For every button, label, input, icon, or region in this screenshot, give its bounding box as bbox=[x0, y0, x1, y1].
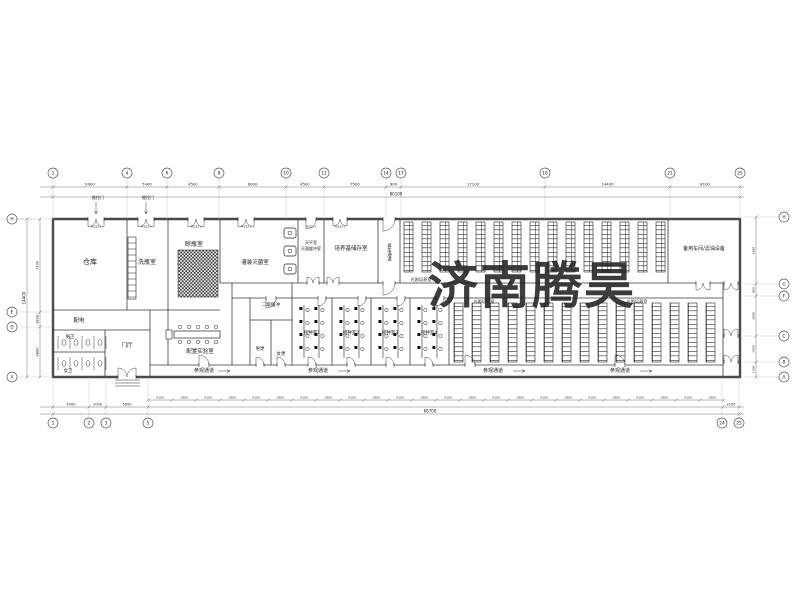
room-label-buffer2: 二级缓冲 bbox=[262, 301, 280, 308]
dim-number: 1800 bbox=[372, 396, 380, 400]
inoc-chair bbox=[439, 321, 442, 324]
inoc-seat bbox=[299, 320, 302, 323]
dim-number: 1800 bbox=[324, 396, 332, 400]
floor-plan-canvas: 9900540045006000450075009001710014400810… bbox=[0, 0, 800, 600]
room-label-medium-storage: 培养基储存室 bbox=[334, 244, 368, 252]
dim-number: 5000 bbox=[123, 403, 132, 407]
room-label-power: 配电 bbox=[73, 316, 85, 324]
watermark: 济南腾昊 bbox=[428, 257, 636, 315]
sliding-door-arrow-2 bbox=[145, 202, 148, 214]
stool bbox=[178, 325, 182, 329]
dim-number: 2100 bbox=[684, 396, 692, 400]
grid-bubble-top-9-label: 21 bbox=[667, 171, 673, 177]
grid-bubble-left-3-label: A bbox=[11, 375, 14, 381]
inoc-seat bbox=[354, 320, 357, 323]
inoc-chair bbox=[385, 347, 388, 350]
room-label-warehouse: 仓库 bbox=[83, 257, 97, 266]
dim-number: 2100 bbox=[156, 396, 164, 400]
floor-plan-drawing: 9900540045006000450075009001710014400810… bbox=[0, 0, 800, 600]
grid-bubble-bottom-right-1-label: 25 bbox=[736, 421, 742, 427]
room-label-sterile-buffer: 灭菌缓冲室 bbox=[301, 245, 321, 251]
inoc-seat bbox=[339, 307, 342, 310]
inoc-chair bbox=[400, 334, 403, 337]
inoc-chair bbox=[346, 321, 349, 324]
room-label-bottle-washing: 洗瓶室 bbox=[138, 258, 156, 266]
room-label-prep-lab: 配置实验室 bbox=[186, 347, 214, 355]
room-label-inoc2: 接种室2 bbox=[343, 329, 359, 336]
filling-machine bbox=[284, 264, 296, 274]
door-opening bbox=[318, 296, 326, 300]
door-opening bbox=[465, 363, 475, 367]
door-tag-1: M1521 bbox=[141, 225, 151, 229]
inoc-chair bbox=[346, 347, 349, 350]
stool bbox=[214, 325, 218, 329]
door-opening bbox=[266, 296, 276, 300]
toilet-fixture bbox=[86, 340, 90, 346]
room-label-inoc4: 接种室4 bbox=[421, 329, 437, 336]
dim-number: 1800 bbox=[660, 396, 668, 400]
dim-number: 4800 bbox=[36, 348, 40, 357]
grid-bubble-top-1-label: 4 bbox=[126, 171, 129, 177]
door-tags: M1521M1521M1521M1521M1521M1521 bbox=[91, 225, 345, 229]
inoc-seat bbox=[393, 346, 396, 349]
dim-number: 14400 bbox=[601, 182, 614, 187]
grid-bubble-top-8-label: 18 bbox=[542, 171, 548, 177]
dim-number: 7200 bbox=[36, 261, 40, 270]
door-opening bbox=[199, 363, 209, 367]
room-label-male-wc: 男卫 bbox=[66, 334, 75, 340]
inoc-seat bbox=[417, 320, 420, 323]
grid-bubble-top-7-label: 17 bbox=[398, 171, 404, 177]
dim-number: 6600 bbox=[752, 247, 756, 255]
stool bbox=[214, 340, 218, 344]
dim-number: 9900 bbox=[85, 182, 95, 187]
dim-number: 1800 bbox=[180, 396, 188, 400]
dim-number: 2100 bbox=[396, 396, 404, 400]
grid-bubble-left-0-label: H bbox=[10, 217, 13, 223]
dim-number: 2100 bbox=[727, 403, 736, 407]
inoc-seat bbox=[314, 320, 317, 323]
inoc-chair bbox=[361, 308, 364, 311]
inoc-chair bbox=[306, 321, 309, 324]
toilet-fixture bbox=[98, 361, 102, 367]
inoc-seat bbox=[432, 346, 435, 349]
inoc-seat bbox=[417, 307, 420, 310]
door-opening bbox=[308, 363, 316, 367]
inoc-chair bbox=[439, 347, 442, 350]
corridor-arrow bbox=[338, 370, 350, 373]
stool bbox=[205, 325, 209, 329]
inoc-seat bbox=[299, 346, 302, 349]
inoc-seat bbox=[354, 346, 357, 349]
room-label-inoc1: 接种室1 bbox=[304, 329, 320, 336]
drying-rack-area bbox=[178, 250, 218, 297]
dim-number: 900 bbox=[752, 287, 756, 293]
dim-number: 2100 bbox=[204, 396, 212, 400]
inoc-seat bbox=[432, 320, 435, 323]
grid-bubble-top-10-label: 25 bbox=[737, 171, 743, 177]
inoc-chair bbox=[361, 321, 364, 324]
grid-bubble-right-1-label: G bbox=[782, 282, 785, 288]
dim-number: 2000 bbox=[93, 403, 102, 407]
inoc-seat bbox=[314, 307, 317, 310]
inoc-seat bbox=[339, 320, 342, 323]
grid-bubble-bottom-right-0-label: 24 bbox=[719, 421, 725, 427]
inoc-chair bbox=[306, 308, 309, 311]
filling-machine bbox=[284, 246, 296, 256]
inoc-chair bbox=[400, 321, 403, 324]
door-opening bbox=[386, 363, 394, 367]
dim-number: 1800 bbox=[708, 396, 716, 400]
door-opening bbox=[383, 281, 395, 285]
toilet-fixture bbox=[98, 340, 102, 346]
door-opening bbox=[425, 363, 433, 367]
dim-number: 2100 bbox=[348, 396, 356, 400]
dim-number: 80100 bbox=[390, 192, 403, 197]
inoc-chair bbox=[385, 321, 388, 324]
culture-rack bbox=[404, 222, 413, 272]
grid-bubble-top-2-label: 6 bbox=[166, 171, 169, 177]
dim-number: 4500 bbox=[188, 182, 198, 187]
sliding-door-arrow-1 bbox=[95, 202, 98, 214]
door-opening bbox=[358, 296, 366, 300]
dim-number: 1800 bbox=[564, 396, 572, 400]
door-tag-4: M1521 bbox=[306, 225, 316, 229]
dim-number: 2100 bbox=[252, 396, 260, 400]
toilet-fixture bbox=[74, 361, 78, 367]
inoc-seat bbox=[378, 320, 381, 323]
inoc-seat bbox=[393, 320, 396, 323]
toilet-fixture bbox=[62, 361, 66, 367]
dim-number: 2400 bbox=[752, 345, 756, 353]
dim-number: 17100 bbox=[467, 182, 480, 187]
grid-bubble-bottom-left-3-label: 5 bbox=[147, 421, 150, 427]
inoc-seat bbox=[393, 307, 396, 310]
grid-bubble-bottom-left-0-label: 1 bbox=[52, 421, 55, 427]
grid-bubble-right-4-label: B bbox=[783, 360, 786, 366]
culture-rack bbox=[706, 303, 715, 362]
room-label-filling-sterilizing: 灌装灭菌室 bbox=[241, 258, 269, 266]
dim-number: 2100 bbox=[444, 396, 452, 400]
inoc-chair bbox=[400, 347, 403, 350]
door-opening bbox=[615, 363, 625, 367]
lab-bench bbox=[174, 331, 220, 338]
lab-equipment bbox=[166, 330, 172, 339]
dim-number: 2100 bbox=[636, 396, 644, 400]
culture-rack bbox=[652, 303, 661, 362]
dim-number: 1800 bbox=[228, 396, 236, 400]
door-tag-3: M1521 bbox=[241, 225, 251, 229]
dim-number: 4500 bbox=[300, 182, 310, 187]
dim-number: 1500 bbox=[752, 366, 756, 374]
dim-number: 68700 bbox=[424, 409, 437, 414]
dim-number: 2100 bbox=[540, 396, 548, 400]
grid-bubble-right-3-label: C bbox=[782, 334, 785, 340]
dim-number: 7500 bbox=[350, 182, 360, 187]
culture-rack bbox=[656, 222, 665, 272]
stool bbox=[196, 340, 200, 344]
corridor-arrow bbox=[640, 370, 652, 373]
inoc-chair bbox=[321, 308, 324, 311]
inoc-chair bbox=[321, 334, 324, 337]
grid-bubble-bottom-left-2-label: 3 bbox=[105, 421, 108, 427]
door-opening bbox=[277, 363, 285, 367]
inoc-chair bbox=[306, 347, 309, 350]
dim-number: 3900 bbox=[752, 312, 756, 320]
dim-number: 5400 bbox=[142, 182, 152, 187]
dim-number: 2100 bbox=[588, 396, 596, 400]
shelf-rack bbox=[128, 237, 136, 299]
sliding-door-label-1: 推拉门 bbox=[92, 194, 104, 200]
inoc-seat bbox=[339, 346, 342, 349]
culture-rack bbox=[670, 303, 679, 362]
grid-bubble-bottom-left-1-label: 2 bbox=[88, 421, 91, 427]
inoc-seat bbox=[299, 307, 302, 310]
dim-number: 14400 bbox=[22, 291, 27, 304]
inoc-seat bbox=[299, 333, 302, 336]
toilet-fixture bbox=[74, 340, 78, 346]
room-label-spare-workshop: 备用车间/滤油设备 bbox=[683, 245, 725, 252]
dim-number: 8100 bbox=[700, 182, 710, 187]
door-opening bbox=[256, 363, 264, 367]
inoc-chair bbox=[361, 334, 364, 337]
grid-bubble-top-6-label: 14 bbox=[383, 171, 389, 177]
door-tag-2: M1521 bbox=[191, 225, 201, 229]
corridor-arrow bbox=[218, 370, 230, 373]
dim-number: 1800 bbox=[468, 396, 476, 400]
dim-number: 1800 bbox=[36, 315, 40, 324]
room-label-bottle-drying: 晾瓶室 bbox=[185, 240, 203, 248]
grid-bubble-top-5-label: 12 bbox=[321, 171, 327, 177]
room-label-male-change: 男更 bbox=[256, 346, 265, 352]
dim-number: 6000 bbox=[248, 182, 258, 187]
stool bbox=[205, 340, 209, 344]
corridor-arrow bbox=[513, 370, 525, 373]
inoc-seat bbox=[378, 346, 381, 349]
inoc-chair bbox=[321, 347, 324, 350]
door-opening bbox=[306, 217, 316, 221]
room-label-visitor-corridor-3: 参观通道 bbox=[483, 367, 503, 374]
room-label-female-wc: 女卫 bbox=[64, 367, 73, 374]
dim-number: 4300 bbox=[67, 403, 76, 407]
door-opening bbox=[383, 217, 395, 221]
inoc-seat bbox=[417, 346, 420, 349]
toilet-fixture bbox=[62, 340, 66, 346]
stool bbox=[187, 325, 191, 329]
grid-bubble-left-1-label: E bbox=[11, 310, 14, 316]
inoc-seat bbox=[378, 307, 381, 310]
sliding-door-label-2: 推拉门 bbox=[142, 194, 154, 200]
inoc-chair bbox=[400, 308, 403, 311]
filling-machine bbox=[284, 228, 296, 238]
dim-number: 1800 bbox=[516, 396, 524, 400]
stool bbox=[178, 340, 182, 344]
dim-number: 900 bbox=[390, 182, 398, 187]
inoc-chair bbox=[424, 308, 427, 311]
dim-number: 1800 bbox=[276, 396, 284, 400]
door-tag-5: M1521 bbox=[335, 225, 345, 229]
room-label-regen-corridor: 再生通道 bbox=[387, 243, 392, 263]
inoc-chair bbox=[321, 321, 324, 324]
stool bbox=[187, 340, 191, 344]
room-label-lobby: 门厅 bbox=[121, 341, 133, 349]
door-tag-0: M1521 bbox=[91, 225, 101, 229]
dim-number: 2100 bbox=[300, 396, 308, 400]
stool bbox=[196, 325, 200, 329]
inoc-chair bbox=[385, 308, 388, 311]
inoc-chair bbox=[424, 347, 427, 350]
culture-rack bbox=[638, 222, 647, 272]
grid-bubble-right-0-label: H bbox=[782, 215, 785, 221]
inoc-chair bbox=[346, 308, 349, 311]
inoc-seat bbox=[314, 346, 317, 349]
room-label-visitor-corridor-4: 参观通道 bbox=[610, 367, 630, 374]
grid-bubble-top-0-label: 1 bbox=[52, 171, 55, 177]
culture-rack bbox=[688, 303, 697, 362]
room-label-balance: 天平室 bbox=[305, 239, 317, 245]
inoc-seat bbox=[354, 307, 357, 310]
inoc-chair bbox=[424, 321, 427, 324]
door-opening bbox=[397, 296, 405, 300]
toilet-fixture bbox=[86, 361, 90, 367]
inoc-chair bbox=[439, 334, 442, 337]
grid-bubble-top-3-label: 8 bbox=[218, 171, 221, 177]
room-label-inoc3: 接种室3 bbox=[382, 329, 398, 336]
door-opening bbox=[347, 363, 355, 367]
dim-number: 1800 bbox=[612, 396, 620, 400]
room-label-visitor-corridor-1: 参观通道 bbox=[194, 367, 214, 374]
dim-number: 2100 bbox=[492, 396, 500, 400]
room-label-visitor-corridor-2: 参观通道 bbox=[308, 367, 328, 374]
inoc-chair bbox=[361, 347, 364, 350]
grid-bubble-right-5-label: A bbox=[783, 375, 786, 381]
grid-bubble-top-4-label: 10 bbox=[283, 171, 289, 177]
dim-number: 1800 bbox=[420, 396, 428, 400]
room-label-female-change: 女更 bbox=[277, 350, 286, 357]
